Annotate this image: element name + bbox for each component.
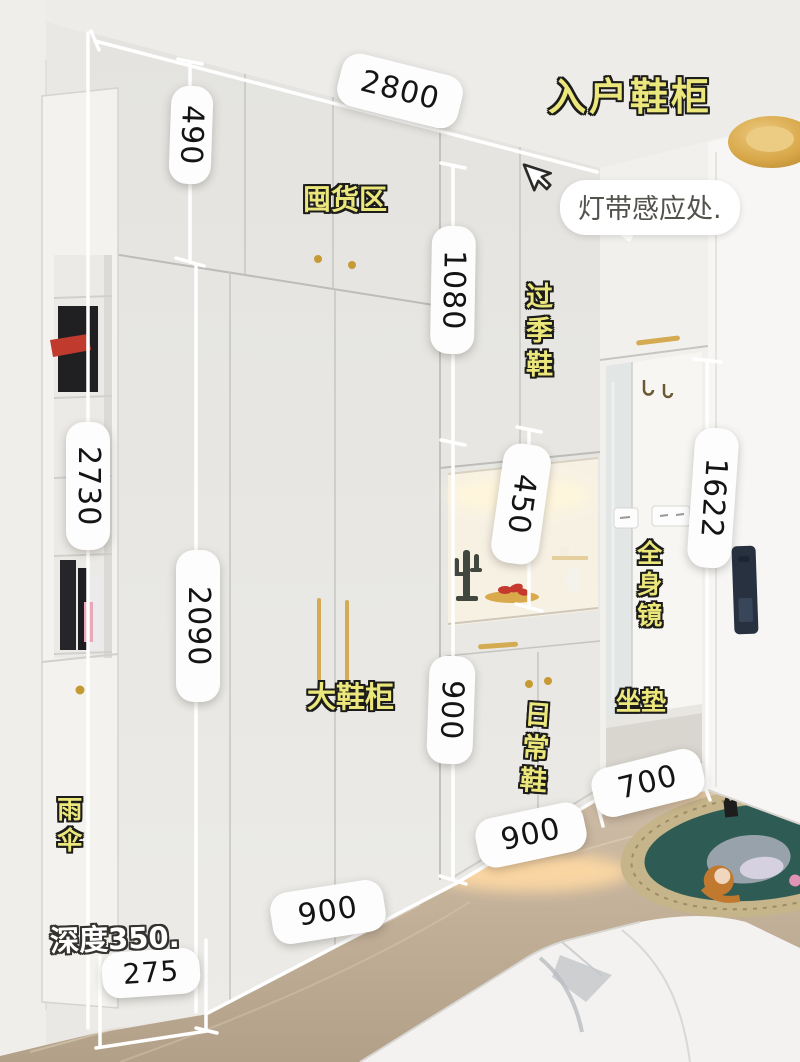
dimension-pill-mid-lower-height: 900	[426, 655, 476, 765]
label-seat-cushion: 坐垫	[616, 688, 666, 717]
label-stock-area: 囤货区	[303, 184, 387, 216]
gold-tray	[485, 591, 539, 603]
light-sensor-bubble: 灯带感应处.	[560, 180, 740, 235]
page-title: 入户鞋柜	[548, 76, 712, 120]
dimension-pill-mid-upper-height: 1080	[430, 226, 476, 355]
photo-background	[0, 0, 800, 1062]
annotated-entryway-photo: 2800 490 2730 2090 1080 450 900 1622 700…	[0, 0, 800, 1062]
label-full-body-mirror: 全身镜	[633, 540, 662, 633]
gold-door-handle	[317, 598, 321, 690]
left-wall-corner	[0, 0, 46, 1058]
wall-switches	[614, 506, 690, 528]
gold-door-handle	[345, 600, 349, 692]
smart-lock	[731, 546, 758, 635]
label-umbrella: 雨伞	[53, 796, 82, 858]
dimension-pill-tall-door-height: 2090	[176, 550, 220, 702]
label-depth-note: 深度350.	[49, 914, 180, 960]
dimension-pill-top-section-height: 490	[168, 85, 213, 184]
gold-knob	[76, 686, 85, 695]
dimension-pill-total-height: 2730	[66, 422, 110, 550]
label-off-season-shoes: 过季鞋	[521, 282, 552, 384]
full-length-mirror	[606, 362, 632, 720]
label-big-shoe-cabinet: 大鞋柜	[307, 681, 394, 714]
